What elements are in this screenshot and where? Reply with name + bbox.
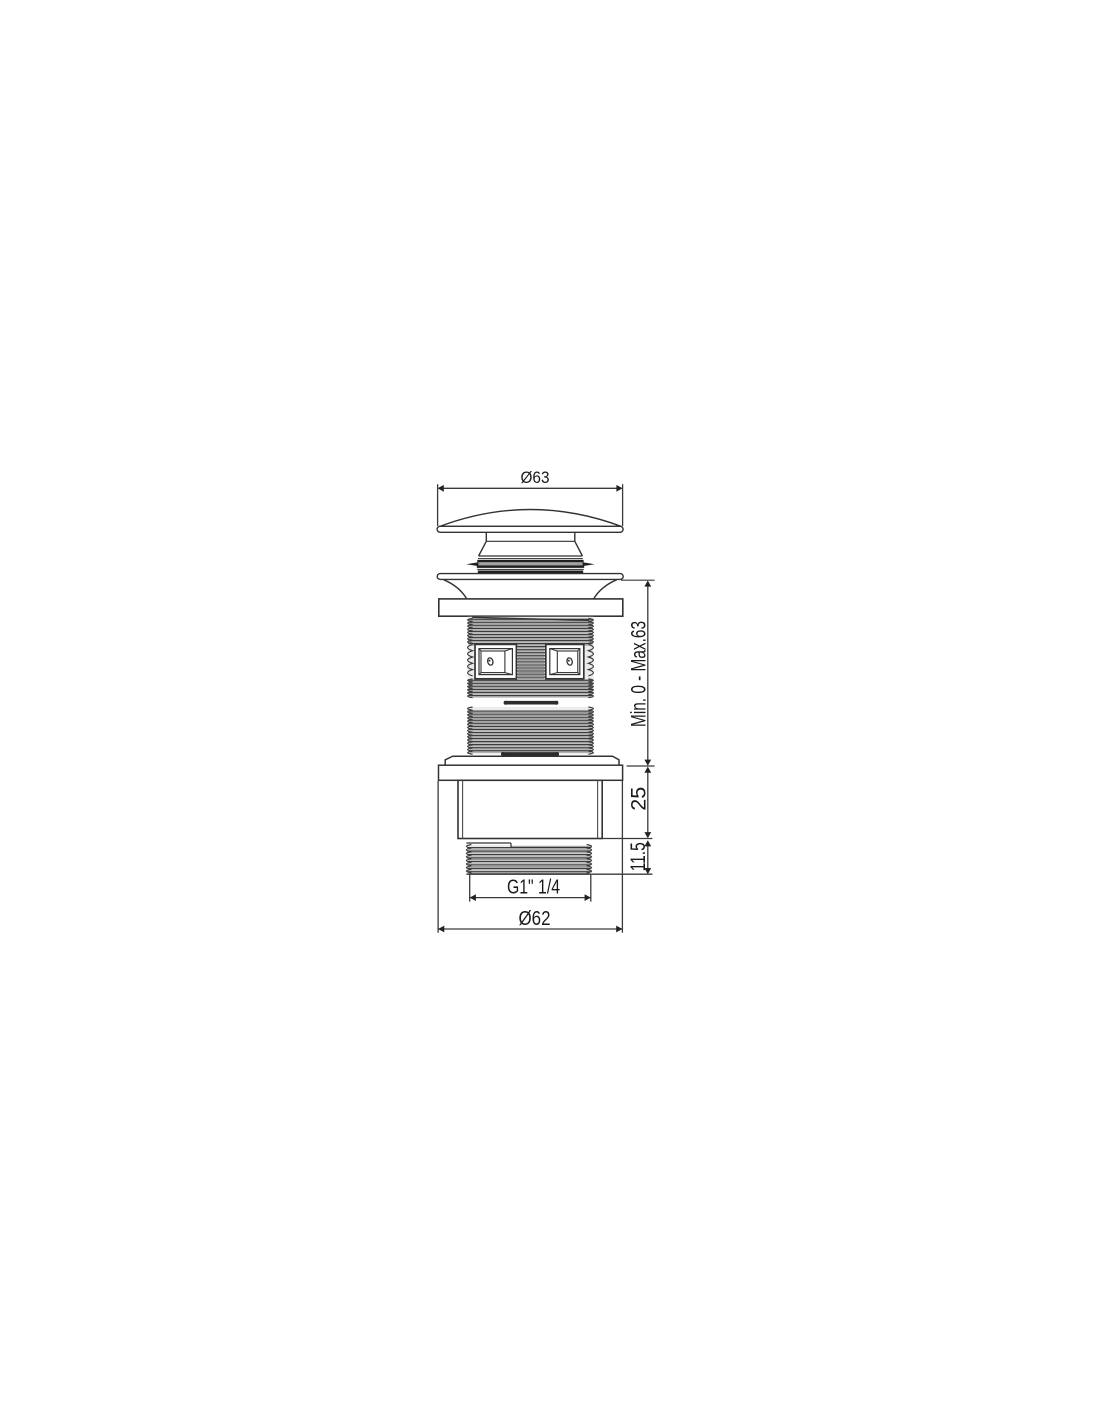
svg-text:Ø62: Ø62	[519, 908, 551, 930]
svg-text:G1" 1/4: G1" 1/4	[507, 875, 560, 898]
svg-text:Min. 0 - Max.63: Min. 0 - Max.63	[628, 621, 651, 727]
svg-text:11.5: 11.5	[627, 842, 650, 871]
svg-text:Ø63: Ø63	[521, 469, 550, 487]
svg-text:25: 25	[628, 787, 651, 811]
